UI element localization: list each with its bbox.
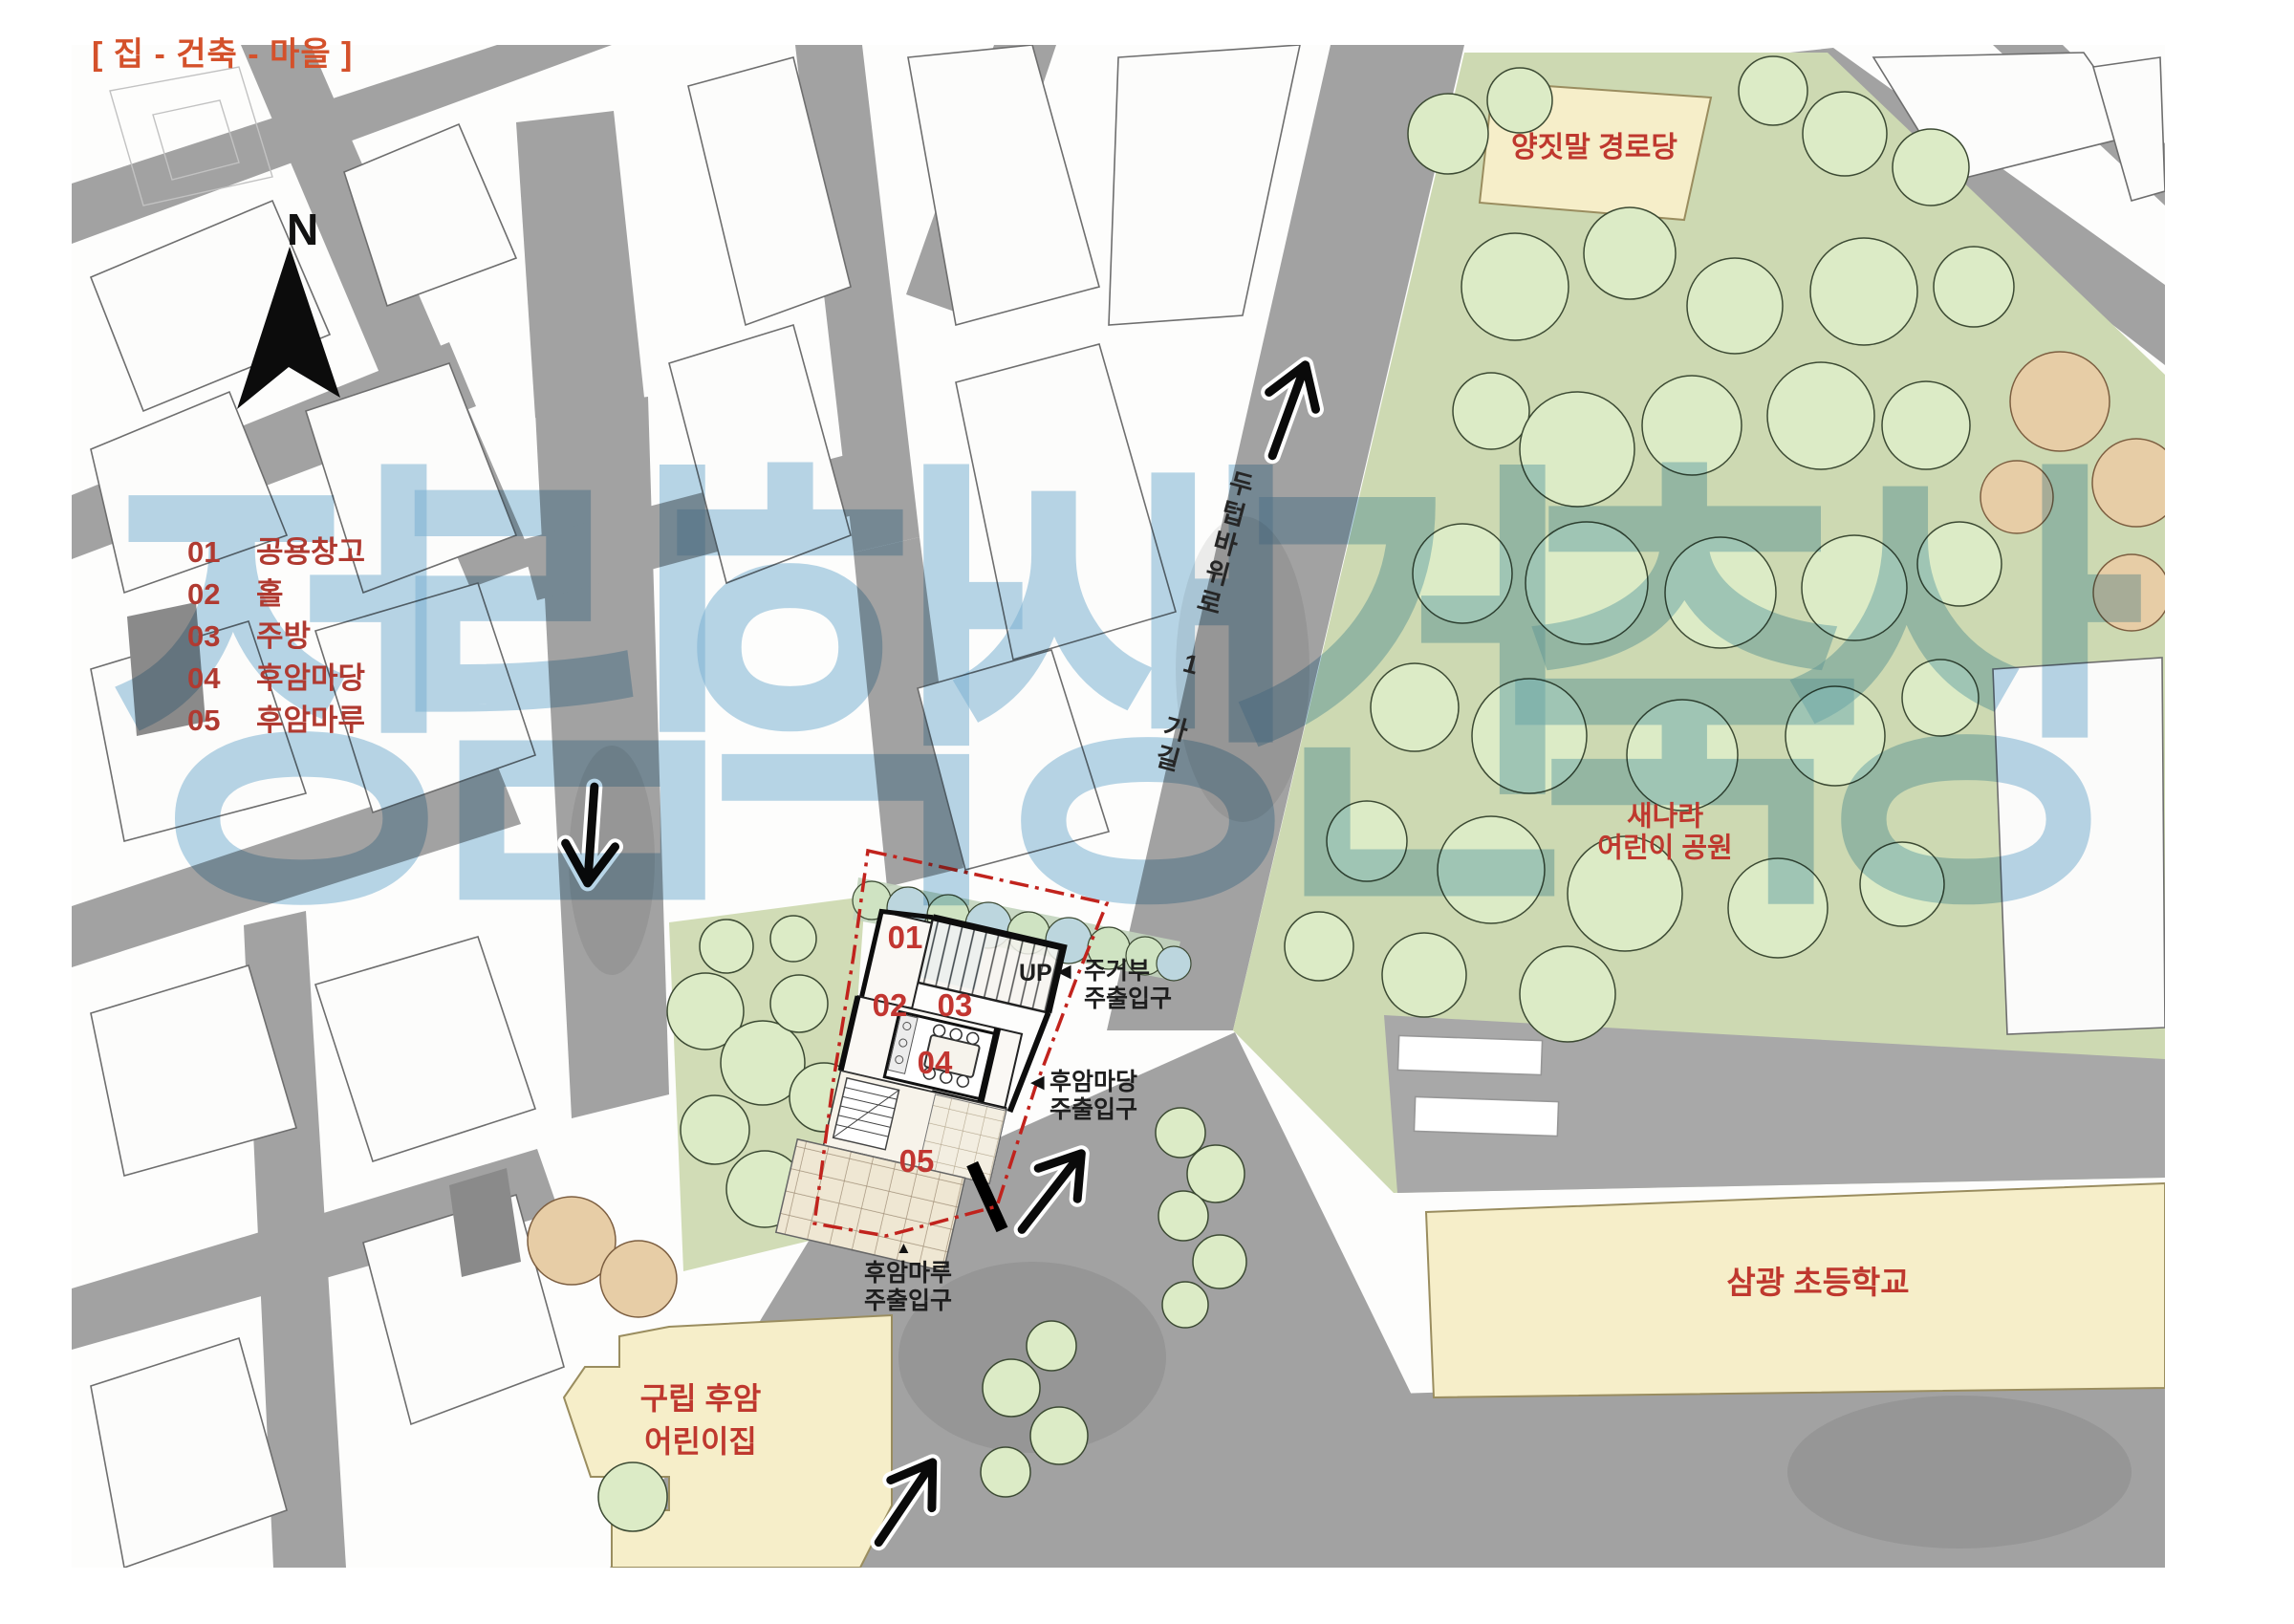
- legend-label: 후암마당: [256, 661, 365, 696]
- up-label: UP: [1019, 960, 1052, 987]
- park-label: 새나라 어린이 공원: [1597, 802, 1732, 866]
- legend-num: 03: [187, 619, 256, 654]
- school-label: 삼광 초등학교: [1726, 1265, 1909, 1301]
- legend-item: 04 후암마당: [187, 658, 365, 700]
- map-canvas: [72, 45, 2180, 1568]
- legend-label: 홀: [256, 577, 284, 612]
- room-marker-04: 04: [918, 1045, 953, 1081]
- entrance-madang-marker: ◀: [1030, 1072, 1045, 1093]
- site-plan-artwork: [0, 0, 2294, 1624]
- legend-label: 공용창고: [256, 535, 365, 570]
- senior-center-label: 양짓말 경로당: [1511, 132, 1677, 165]
- legend-num: 05: [187, 704, 256, 738]
- entrance-residential-line2: 주출입구: [1084, 985, 1172, 1013]
- daycare-label: 구립 후암 어린이집: [640, 1377, 762, 1463]
- legend-item: 05 후암마루: [187, 700, 365, 742]
- entrance-maru-marker: ▲: [896, 1239, 912, 1258]
- legend-item: 03 주방: [187, 616, 365, 658]
- legend: 01 공용창고 02 홀 03 주방 04 후암마당 05 후암마루: [187, 531, 365, 742]
- legend-num: 01: [187, 535, 256, 570]
- page-title: [ 집 - 건축 - 마을 ]: [92, 36, 353, 74]
- entrance-residential-marker: ◀: [1057, 962, 1071, 983]
- entrance-madang-line1: 후암마당: [1050, 1069, 1137, 1096]
- legend-item: 01 공용창고: [187, 531, 365, 574]
- legend-item: 02 홀: [187, 574, 365, 616]
- room-marker-02: 02: [873, 987, 908, 1024]
- entrance-residential-label: 주거부 주출입구: [1084, 958, 1172, 1013]
- entrance-maru-label: 후암마루 주출입구: [864, 1260, 952, 1315]
- room-marker-03: 03: [938, 987, 973, 1024]
- daycare-label-line1: 구립 후암: [640, 1377, 762, 1420]
- daycare-label-line2: 어린이집: [640, 1420, 762, 1463]
- room-marker-05: 05: [899, 1143, 935, 1180]
- entrance-madang-line2: 주출입구: [1050, 1096, 1137, 1124]
- north-label: N: [287, 205, 318, 255]
- entrance-madang-label: 후암마당 주출입구: [1050, 1069, 1137, 1124]
- legend-label: 후암마루: [256, 704, 365, 738]
- legend-num: 04: [187, 661, 256, 696]
- park-label-line1: 새나라: [1597, 802, 1732, 834]
- entrance-residential-line1: 주거부: [1084, 958, 1172, 985]
- daycare-bush: [598, 1462, 667, 1531]
- legend-label: 주방: [256, 619, 311, 654]
- park-label-line2: 어린이 공원: [1597, 834, 1732, 865]
- entrance-maru-line2: 주출입구: [864, 1288, 952, 1315]
- entrance-maru-line1: 후암마루: [864, 1260, 952, 1288]
- block-right-mid: [1993, 658, 2165, 1034]
- site-plan-page: 정림학생건축상 [ 집 - 건축 - 마을 ] N 01 공용창고 02 홀 0…: [0, 0, 2294, 1624]
- legend-num: 02: [187, 577, 256, 612]
- room-marker-01: 01: [888, 920, 923, 956]
